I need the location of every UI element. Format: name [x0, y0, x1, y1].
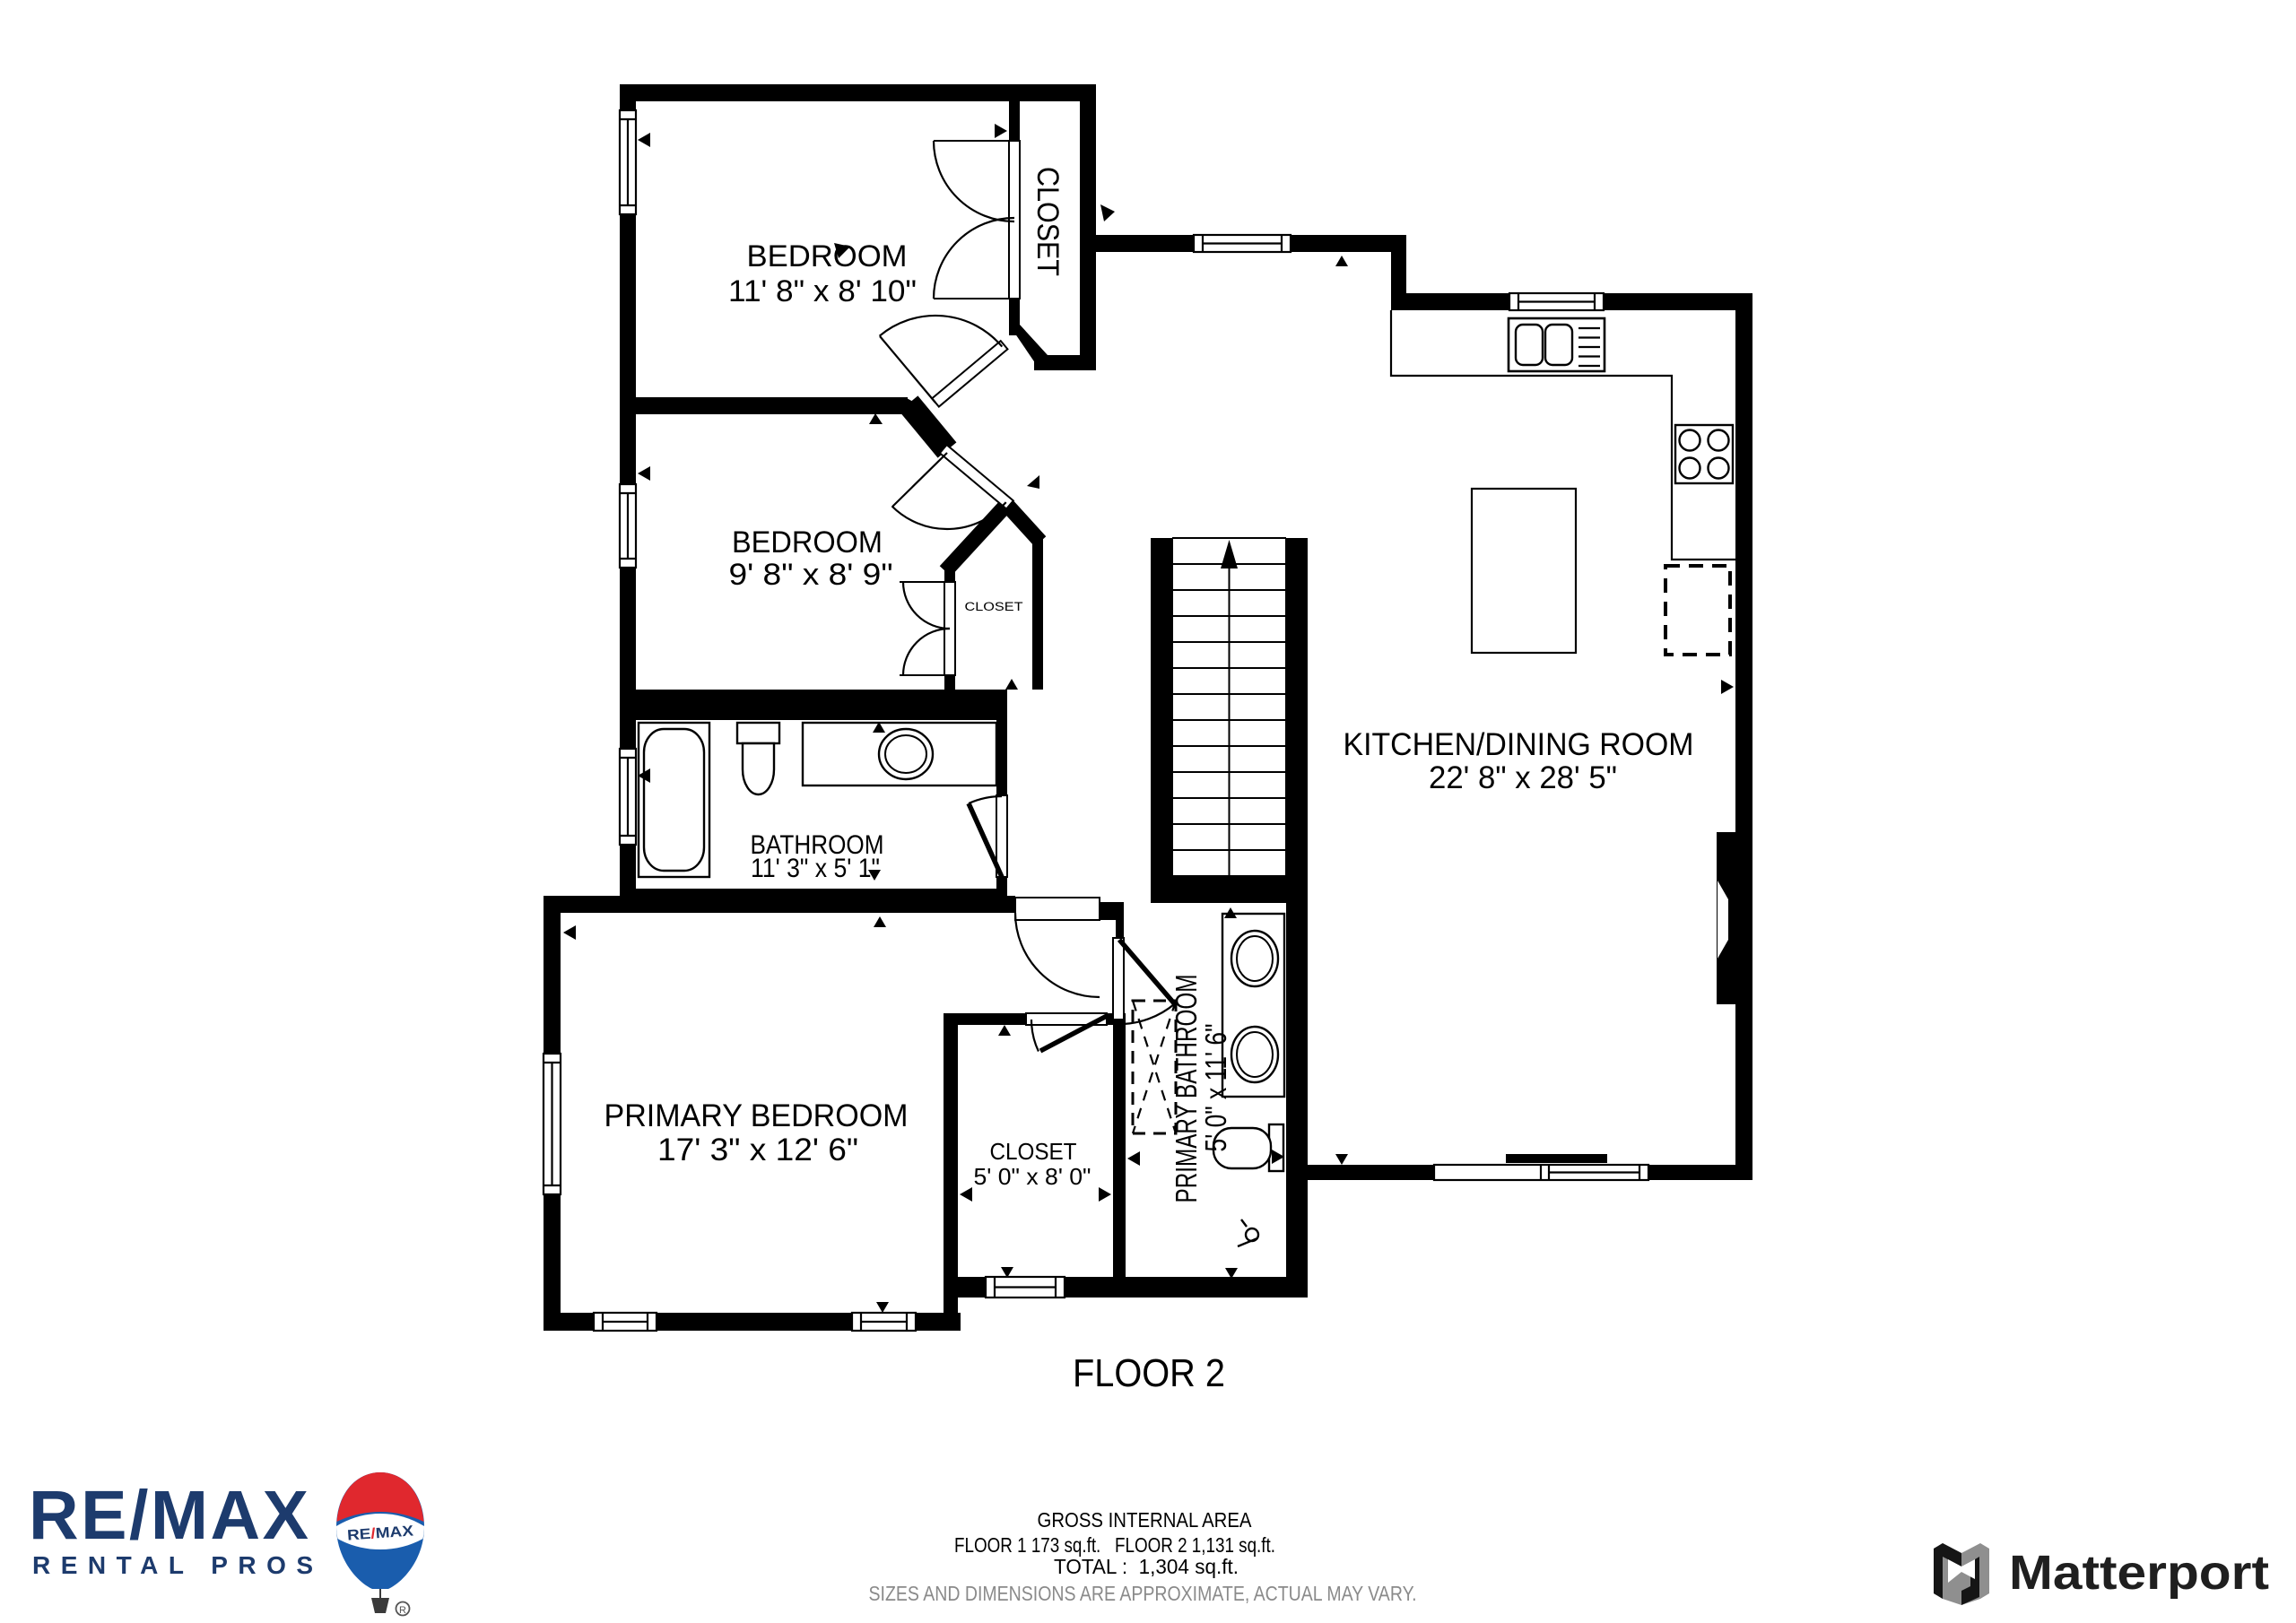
svg-text:11' 3" x 5' 1": 11' 3" x 5' 1"	[751, 854, 880, 883]
svg-text:KITCHEN/DINING ROOM: KITCHEN/DINING ROOM	[1344, 727, 1694, 762]
svg-text:22' 8" x 28' 5": 22' 8" x 28' 5"	[1429, 760, 1617, 795]
svg-text:PRIMARY BEDROOM: PRIMARY BEDROOM	[604, 1098, 909, 1133]
svg-text:9' 8" x 8' 9": 9' 8" x 8' 9"	[729, 558, 893, 592]
svg-text:RENTAL PROS: RENTAL PROS	[32, 1551, 324, 1579]
svg-text:CLOSET: CLOSET	[990, 1138, 1077, 1165]
svg-text:17' 3" x 12' 6": 17' 3" x 12' 6"	[657, 1133, 858, 1167]
svg-text:FLOOR 1 173 sq.ft. FLOOR 2 1: FLOOR 1 173 sq.ft. FLOOR 2 1,131 sq.ft.	[954, 1533, 1275, 1557]
svg-text:CLOSET: CLOSET	[965, 600, 1023, 613]
svg-text:CLOSET: CLOSET	[1031, 167, 1065, 276]
svg-text:TOTAL : 1,304 sq.ft.: TOTAL : 1,304 sq.ft.	[1054, 1555, 1239, 1578]
svg-text:R: R	[399, 1605, 406, 1616]
svg-text:RE/MAX: RE/MAX	[29, 1477, 310, 1554]
svg-text:BEDROOM: BEDROOM	[732, 525, 883, 560]
svg-text:5' 0" x 11' 6": 5' 0" x 11' 6"	[1199, 1024, 1232, 1152]
svg-text:Matterport: Matterport	[2009, 1546, 2269, 1600]
svg-text:11' 8" x 8' 10": 11' 8" x 8' 10"	[728, 274, 917, 308]
svg-text:BEDROOM: BEDROOM	[747, 239, 908, 273]
svg-text:SIZES AND DIMENSIONS ARE APPRO: SIZES AND DIMENSIONS ARE APPROXIMATE, AC…	[869, 1582, 1417, 1605]
svg-text:GROSS INTERNAL AREA: GROSS INTERNAL AREA	[1038, 1508, 1253, 1532]
svg-text:5' 0" x 8' 0": 5' 0" x 8' 0"	[974, 1163, 1091, 1190]
svg-text:PRIMARY BATHROOM: PRIMARY BATHROOM	[1170, 975, 1203, 1203]
svg-text:FLOOR 2: FLOOR 2	[1073, 1351, 1225, 1395]
